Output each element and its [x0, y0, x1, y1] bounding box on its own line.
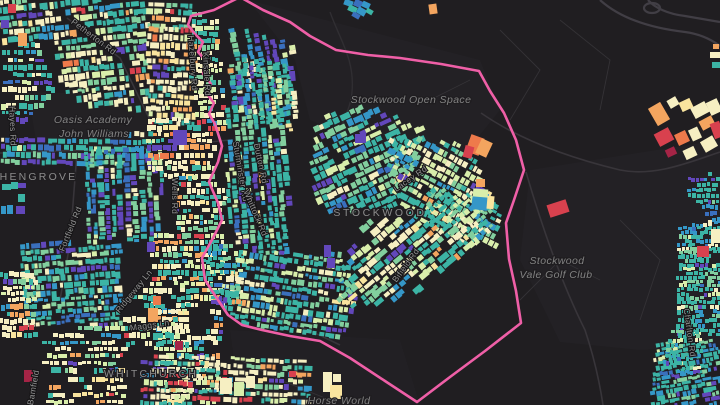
svg-text:Vale Golf Club: Vale Golf Club — [520, 269, 593, 281]
svg-text:Wells Rd: Wells Rd — [170, 178, 180, 214]
svg-text:Oasis Academy: Oasis Academy — [54, 114, 133, 126]
svg-text:HENGROVE: HENGROVE — [0, 171, 77, 183]
svg-text:Hayes Rd: Hayes Rd — [7, 106, 18, 146]
svg-text:Horse World: Horse World — [308, 395, 372, 405]
svg-text:STOCKWOOD: STOCKWOOD — [333, 207, 426, 219]
svg-text:John Williams: John Williams — [58, 128, 129, 140]
svg-text:WHITCHURCH: WHITCHURCH — [104, 368, 198, 380]
svg-text:Stockwood: Stockwood — [530, 255, 586, 267]
svg-text:Stockwood Open Space: Stockwood Open Space — [351, 94, 472, 106]
